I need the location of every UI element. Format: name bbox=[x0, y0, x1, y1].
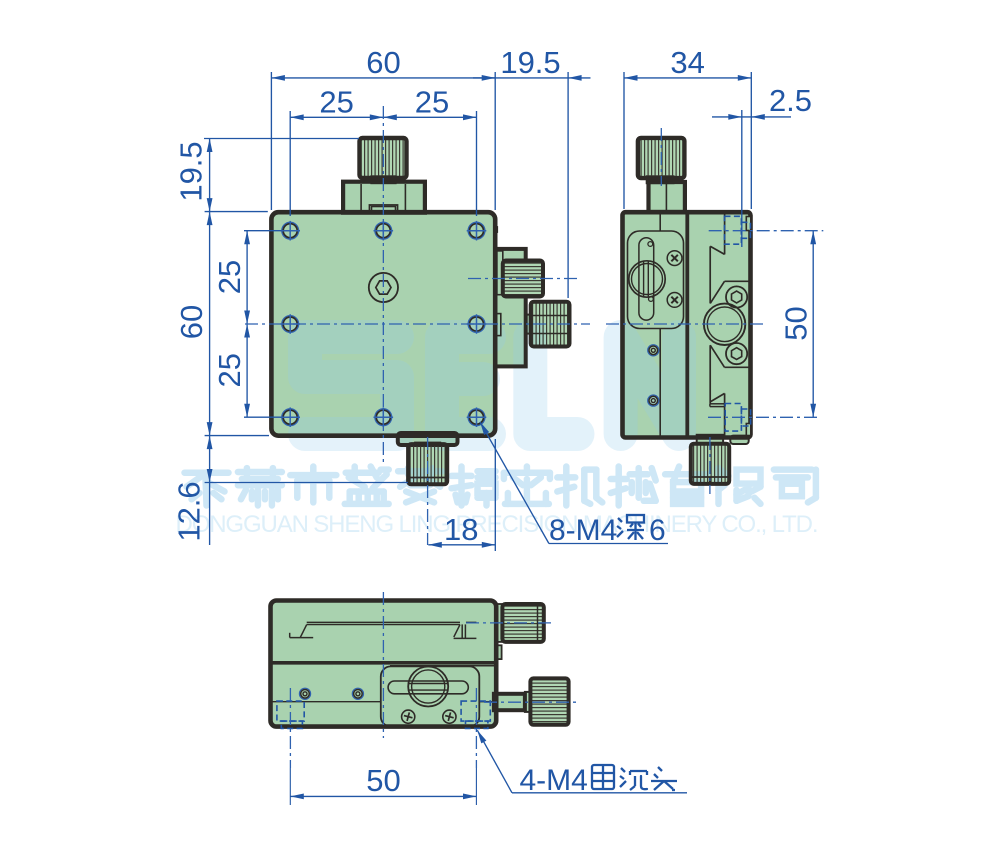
svg-text:18: 18 bbox=[444, 512, 478, 547]
svg-text:50: 50 bbox=[366, 763, 400, 798]
svg-text:25: 25 bbox=[212, 353, 247, 387]
svg-text:DONGGUAN SHENG LING PRECISION: DONGGUAN SHENG LING PRECISION MACHINERY … bbox=[176, 511, 819, 538]
svg-text:2.5: 2.5 bbox=[769, 83, 812, 118]
svg-text:4-M4: 4-M4 bbox=[520, 764, 588, 797]
svg-text:50: 50 bbox=[779, 306, 814, 340]
svg-text:6: 6 bbox=[649, 514, 666, 547]
svg-text:19.5: 19.5 bbox=[174, 141, 209, 201]
svg-text:60: 60 bbox=[174, 305, 209, 339]
svg-text:25: 25 bbox=[319, 85, 353, 120]
svg-text:12.6: 12.6 bbox=[172, 481, 207, 541]
svg-text:60: 60 bbox=[366, 45, 400, 80]
svg-text:34: 34 bbox=[670, 45, 704, 80]
svg-text:8-M4: 8-M4 bbox=[549, 514, 617, 547]
svg-text:19.5: 19.5 bbox=[500, 45, 560, 80]
svg-text:25: 25 bbox=[415, 85, 449, 120]
svg-text:25: 25 bbox=[212, 260, 247, 294]
